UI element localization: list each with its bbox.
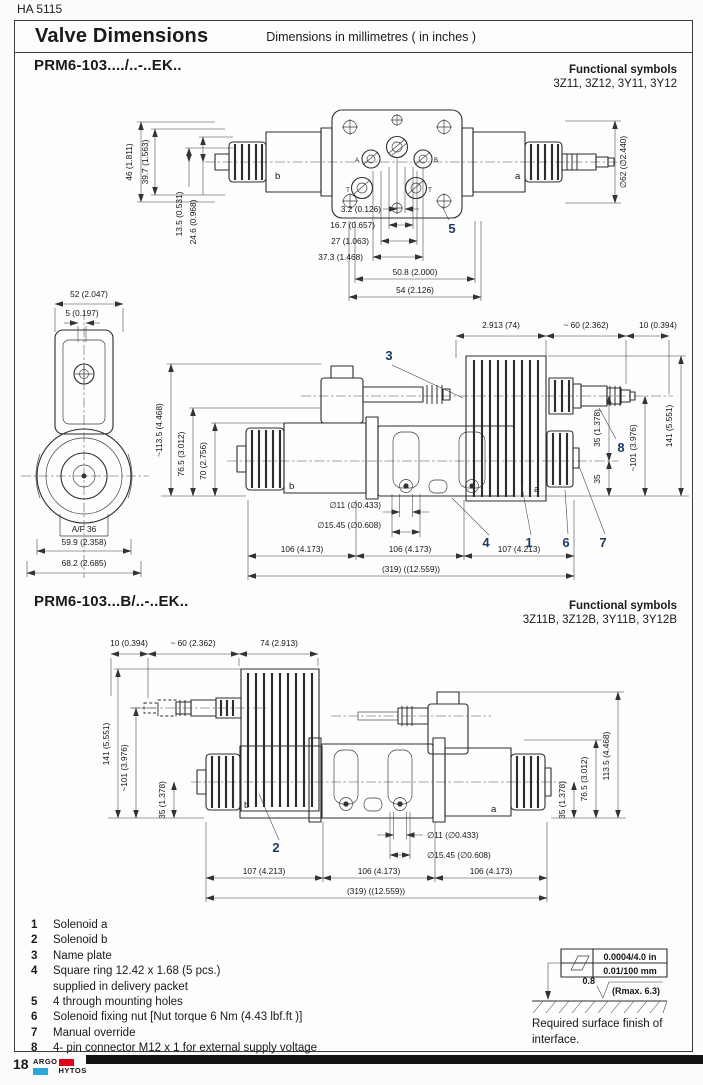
legend-list: 1Solenoid a 2Solenoid b 3Name plate 4Squ… (31, 918, 317, 1057)
dim-label: 10 (0.394) (639, 320, 677, 330)
front-view1-fixing-nut (547, 431, 579, 487)
callout-3: 3 (385, 348, 392, 363)
callout-2: 2 (272, 840, 279, 855)
port-b (414, 150, 432, 168)
datasheet-page: HA 5115 Valve Dimensions Dimensions in m… (0, 0, 703, 1085)
dim-label: 74 (2.913) (260, 638, 298, 648)
front-view1-connector-elbow (321, 366, 450, 423)
dim-label: 106 (4.173) (281, 544, 324, 554)
dim-label: 2.913 (74) (482, 320, 520, 330)
front-view1-dimensions-left: ~113.5 (4.468) 76.5 (3.012) 70 (2.756) (154, 364, 321, 496)
front-view2-valve-body (321, 744, 433, 818)
dim-label: 16.7 (0.657) (330, 220, 375, 230)
dim-label: 35 (1.378) (592, 409, 602, 447)
callout-2-leader (259, 794, 279, 840)
content-frame: Valve Dimensions Dimensions in millimetr… (14, 20, 693, 1052)
functional-symbols-label: Functional symbols (553, 63, 677, 77)
legend-num: 7 (31, 1026, 53, 1041)
rmax-value: (Rmax. 6.3) (612, 986, 660, 996)
dim-label: 76.5 (3.012) (176, 431, 186, 476)
dim-label: 106 (4.173) (470, 866, 513, 876)
surface-caption-line1: Required surface finish of (532, 1018, 663, 1030)
flatness-in-value: 0.0004/4.0 in (603, 952, 656, 962)
footer-bar (86, 1055, 703, 1064)
callout-4-leader (452, 498, 489, 535)
front-view1-drawing: 2.913 (74) ~ 60 (2.362) 10 (0.394) 141 (… (141, 314, 693, 589)
dim-label: 50.8 (2.000) (393, 267, 438, 277)
legend-text: Name plate (53, 949, 112, 964)
legend-item-7: 7Manual override (31, 1026, 317, 1041)
dim-label: ∅62 (∅2.440) (618, 136, 628, 189)
surface-finish-note: 0.0004/4.0 in 0.01/100 mm 0.8 (Rmax. 6.3… (515, 937, 690, 1049)
surface-hatching (532, 1001, 667, 1013)
dim-label: ∅11 (∅0.433) (427, 830, 479, 840)
surface-caption-line2: interface. (532, 1034, 579, 1046)
legend-text: Solenoid b (53, 933, 107, 948)
roughness-value: 0.8 (582, 976, 595, 986)
dim-label: 76.5 (3.012) (579, 756, 589, 801)
legend-num: 4 (31, 964, 53, 979)
port-t1-label: T (346, 188, 350, 194)
callout-6: 6 (562, 535, 569, 550)
legend-item-1: 1Solenoid a (31, 918, 317, 933)
dim-label: ∅15.45 (∅0.608) (317, 520, 381, 530)
logo-hytos-text: HYTOS (59, 1067, 87, 1075)
doc-code: HA 5115 (17, 2, 62, 16)
callout-5: 5 (448, 221, 455, 236)
legend-item-4: 4Square ring 12.42 x 1.68 (5 pcs.) (31, 964, 317, 979)
dim-label: 106 (4.173) (389, 544, 432, 554)
callout-7: 7 (599, 535, 606, 550)
dim-label: 35 (592, 474, 602, 484)
front-view2-drawing: 10 (0.394) ~ 60 (2.362) 74 (2.913) 141 (… (96, 636, 666, 906)
dim-label: (319) ((12.559)) (382, 564, 440, 574)
logo-argo-text: ARGO (33, 1058, 58, 1066)
end-view-drawing: 52 (2.047) 5 (0.197) A/F 36 (15, 284, 155, 584)
dim-label: 27 (1.063) (331, 236, 369, 246)
page-number: 18 (13, 1056, 29, 1072)
legend-item-5: 54 through mounting holes (31, 995, 317, 1010)
top-view-drawing: A B T T 46 (1.811) 39.7 (115, 101, 693, 313)
dim-label: ~101 (3.976) (628, 424, 638, 472)
legend-text: Solenoid fixing nut [Nut torque 6 Nm (4.… (53, 1010, 302, 1025)
dim-label: 52 (2.047) (70, 289, 108, 299)
front-view2-dimensions-top: 10 (0.394) ~ 60 (2.362) 74 (2.913) (110, 638, 318, 698)
dim-label: ~113.5 (4.468) (154, 403, 164, 457)
dim-label: 107 (4.213) (498, 544, 541, 554)
af36-label: A/F 36 (72, 524, 97, 534)
solenoid-b-label: b (244, 800, 249, 811)
dim-label: 70 (2.756) (198, 442, 208, 480)
logo-blue-block (33, 1068, 48, 1075)
dim-label: 59.9 (2.358) (62, 537, 107, 547)
front-view2-connector-elbow (358, 692, 468, 754)
section1-functional-symbols: Functional symbols 3Z11, 3Z12, 3Y11, 3Y1… (553, 63, 677, 91)
port-t2 (406, 178, 427, 199)
dim-label: 141 (5.551) (664, 405, 674, 448)
section2-functional-symbols: Functional symbols 3Z11B, 3Z12B, 3Y11B, … (523, 599, 677, 627)
port-t1 (352, 178, 373, 199)
port-t2-label: T (428, 188, 432, 194)
legend-num: 5 (31, 995, 53, 1010)
callout-8: 8 (617, 440, 624, 455)
dim-label: 106 (4.173) (358, 866, 401, 876)
dim-label: 37.3 (1.468) (318, 252, 363, 262)
dim-label: 35 (1.378) (557, 781, 567, 819)
front-view2-coil (241, 669, 319, 811)
logo-red-block (59, 1059, 74, 1066)
callout-6-leader (565, 490, 568, 534)
port-a (362, 150, 380, 168)
legend-num: 8 (31, 1041, 53, 1056)
dim-label: 68.2 (2.685) (62, 558, 107, 568)
solenoid-a-label: a (534, 484, 540, 495)
legend-num: 2 (31, 933, 53, 948)
callout-1: 1 (525, 535, 532, 550)
dim-label: 3.2 (0.126) (341, 204, 381, 214)
top-view-dimensions-left: 46 (1.811) 39.7 (1.563) 13.5 (0.531) 24.… (124, 122, 233, 244)
front-view2-dimensions-right: 35 (1.378) 76.5 (3.012) 113.5 (4.468) (459, 692, 626, 819)
dim-label: 113.5 (4.468) (601, 731, 611, 780)
front-view2-dimensions-bottom: ∅11 (∅0.433) ∅15.45 (∅0.608) 107 (4.213)… (206, 812, 547, 902)
brand-logo: ARGO HYTOS (33, 1058, 87, 1075)
front-view2-centerlines (130, 708, 566, 782)
front-view1-dimensions-right: 141 (5.551) ~101 (3.976) 35 (1.378) 35 (514, 356, 689, 496)
legend-item-4-line2: supplied in delivery packet (31, 980, 317, 995)
dim-label: 10 (0.394) (110, 638, 148, 648)
dim-label: 5 (0.197) (65, 308, 98, 318)
dim-label: 39.7 (1.563) (140, 139, 150, 184)
dim-label: 13.5 (0.531) (174, 191, 184, 236)
front-view1-solenoid-b (237, 417, 378, 499)
functional-symbols-label: Functional symbols (523, 599, 677, 613)
page-title: Valve Dimensions (35, 25, 208, 48)
dim-label: 107 (4.213) (243, 866, 286, 876)
legend-num: 6 (31, 1010, 53, 1025)
dim-label: 46 (1.811) (124, 143, 134, 180)
legend-item-2: 2Solenoid b (31, 933, 317, 948)
flatness-mm-value: 0.01/100 mm (603, 966, 657, 976)
functional-symbols-values: 3Z11, 3Z12, 3Y11, 3Y12 (553, 78, 677, 90)
section1-title: PRM6-103..../..-..EK.. (34, 57, 182, 74)
legend-text: Manual override (53, 1026, 135, 1041)
solenoid-b-label: b (289, 481, 294, 492)
dim-label: ~ 60 (2.362) (171, 638, 216, 648)
solenoid-a-label: a (515, 171, 521, 182)
front-view1-coil (466, 356, 546, 501)
page-subtitle: Dimensions in millimetres ( in inches ) (266, 30, 476, 44)
dim-label: 54 (2.126) (396, 285, 434, 295)
end-view-dimensions-top: 52 (2.047) 5 (0.197) (55, 289, 123, 342)
functional-symbols-values: 3Z11B, 3Z12B, 3Y11B, 3Y12B (523, 614, 677, 626)
port-p (387, 137, 408, 158)
dim-label: 141 (5.551) (101, 723, 111, 766)
dim-label: ~101 (3.976) (119, 744, 129, 792)
dim-label: (319) ((12.559)) (347, 886, 405, 896)
legend-item-3: 3Name plate (31, 949, 317, 964)
solenoid-a-label: a (491, 804, 497, 815)
leader (545, 963, 561, 1000)
port-b-label: B (434, 158, 438, 164)
dim-label: 24.6 (0.968) (188, 199, 198, 244)
port-a-label: A (355, 158, 359, 164)
legend-num: 1 (31, 918, 53, 933)
title-bar: Valve Dimensions Dimensions in millimetr… (15, 21, 692, 53)
solenoid-b-label: b (275, 171, 280, 182)
dim-label: ∅15.45 (∅0.608) (427, 850, 491, 860)
section2-title: PRM6-103...B/..-..EK.. (34, 593, 188, 610)
callout-4: 4 (482, 535, 490, 550)
top-view-dimensions-bottom: 3.2 (0.126) 16.7 (0.657) 27 (1.063) 37.3… (318, 158, 481, 301)
legend-text: 4 through mounting holes (53, 995, 183, 1010)
legend-text: Solenoid a (53, 918, 107, 933)
legend-num: 3 (31, 949, 53, 964)
dim-label: ∅11 (∅0.433) (329, 500, 381, 510)
dim-label: ~ 60 (2.362) (564, 320, 609, 330)
legend-item-6: 6Solenoid fixing nut [Nut torque 6 Nm (4… (31, 1010, 317, 1025)
dim-label: 35 (1.378) (157, 781, 167, 819)
legend-text: Square ring 12.42 x 1.68 (5 pcs.) (53, 964, 221, 979)
